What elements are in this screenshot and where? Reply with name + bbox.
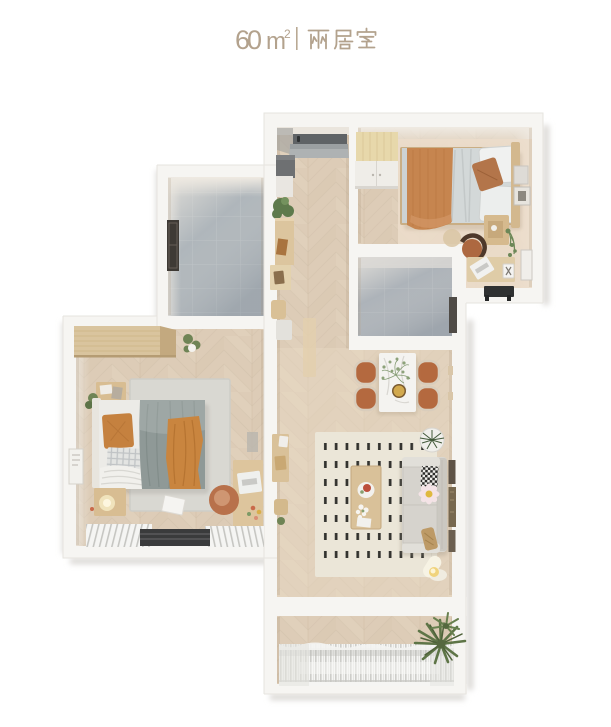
svg-text:60: 60	[235, 25, 264, 55]
svg-text:2: 2	[284, 27, 291, 41]
svg-text:m: m	[266, 28, 286, 55]
